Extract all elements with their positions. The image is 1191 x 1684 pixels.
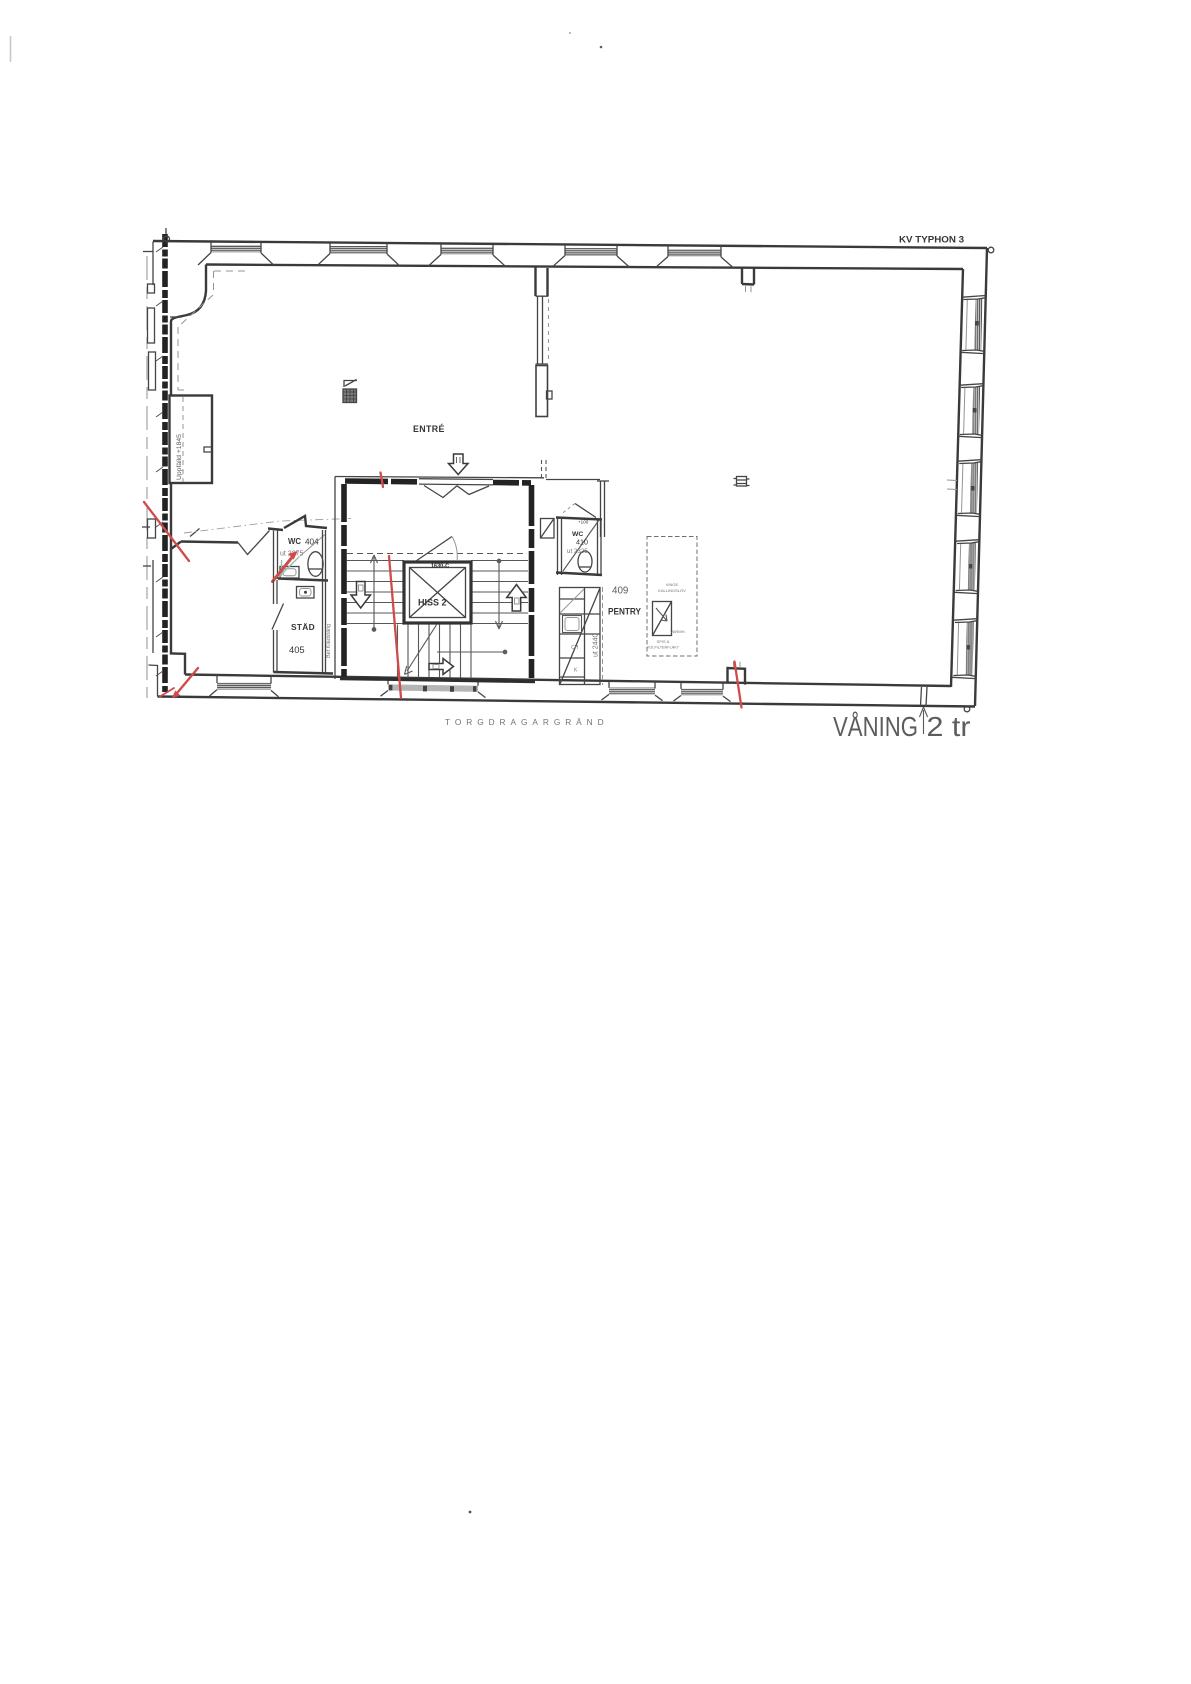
svg-text:WC: WC [288, 537, 301, 546]
svg-text:VÅNING: VÅNING [833, 711, 918, 742]
svg-text:K: K [574, 668, 578, 674]
svg-text:PENTRY: PENTRY [608, 607, 641, 617]
svg-text:Uppfälld +1845: Uppfälld +1845 [176, 434, 183, 480]
svg-text:+100: +100 [578, 520, 589, 525]
svg-text:CH: CH [571, 645, 579, 651]
svg-text:2 tr: 2 tr [927, 711, 971, 742]
svg-text:TORGDRAGARGRÄND: TORGDRAGARGRÄND [445, 717, 609, 727]
svg-text:ENTRÉ: ENTRÉ [413, 424, 445, 434]
svg-text:VINGE: VINGE [666, 582, 679, 587]
svg-text:1630-C: 1630-C [431, 564, 449, 570]
svg-text:ut 2440: ut 2440 [593, 634, 600, 657]
svg-text:VARMH.: VARMH. [670, 629, 685, 634]
svg-text:410: 410 [576, 538, 588, 547]
svg-text:SPIS &: SPIS & [657, 639, 670, 644]
svg-text:KV TYPHON 3: KV TYPHON 3 [899, 235, 964, 246]
svg-text:ut 2325: ut 2325 [567, 548, 588, 555]
svg-text:Bef Klädstång: Bef Klädstång [325, 624, 332, 658]
svg-text:405: 405 [289, 644, 305, 655]
svg-text:STÄD: STÄD [291, 622, 315, 632]
svg-text:KALLINGSLÖV: KALLINGSLÖV [658, 588, 686, 593]
svg-text:HISS 2: HISS 2 [418, 598, 447, 608]
svg-text:409: 409 [612, 586, 628, 597]
svg-text:KOLFILTERFLÄKT: KOLFILTERFLÄKT [647, 646, 680, 650]
